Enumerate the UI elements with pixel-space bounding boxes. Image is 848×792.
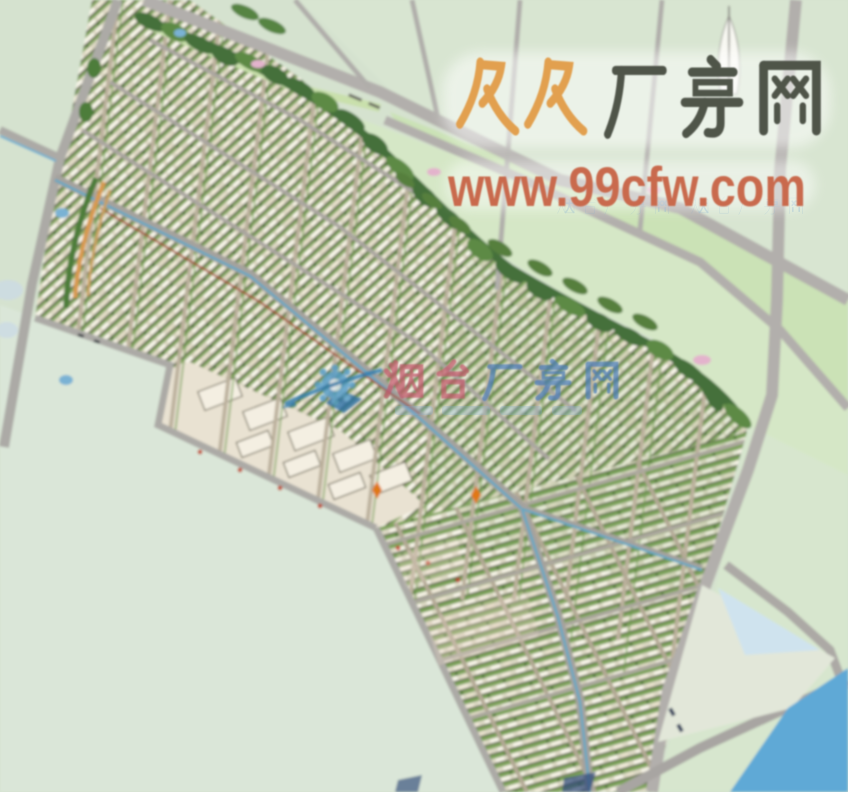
svg-text:www.99cfw.com: www.99cfw.com bbox=[447, 155, 806, 218]
